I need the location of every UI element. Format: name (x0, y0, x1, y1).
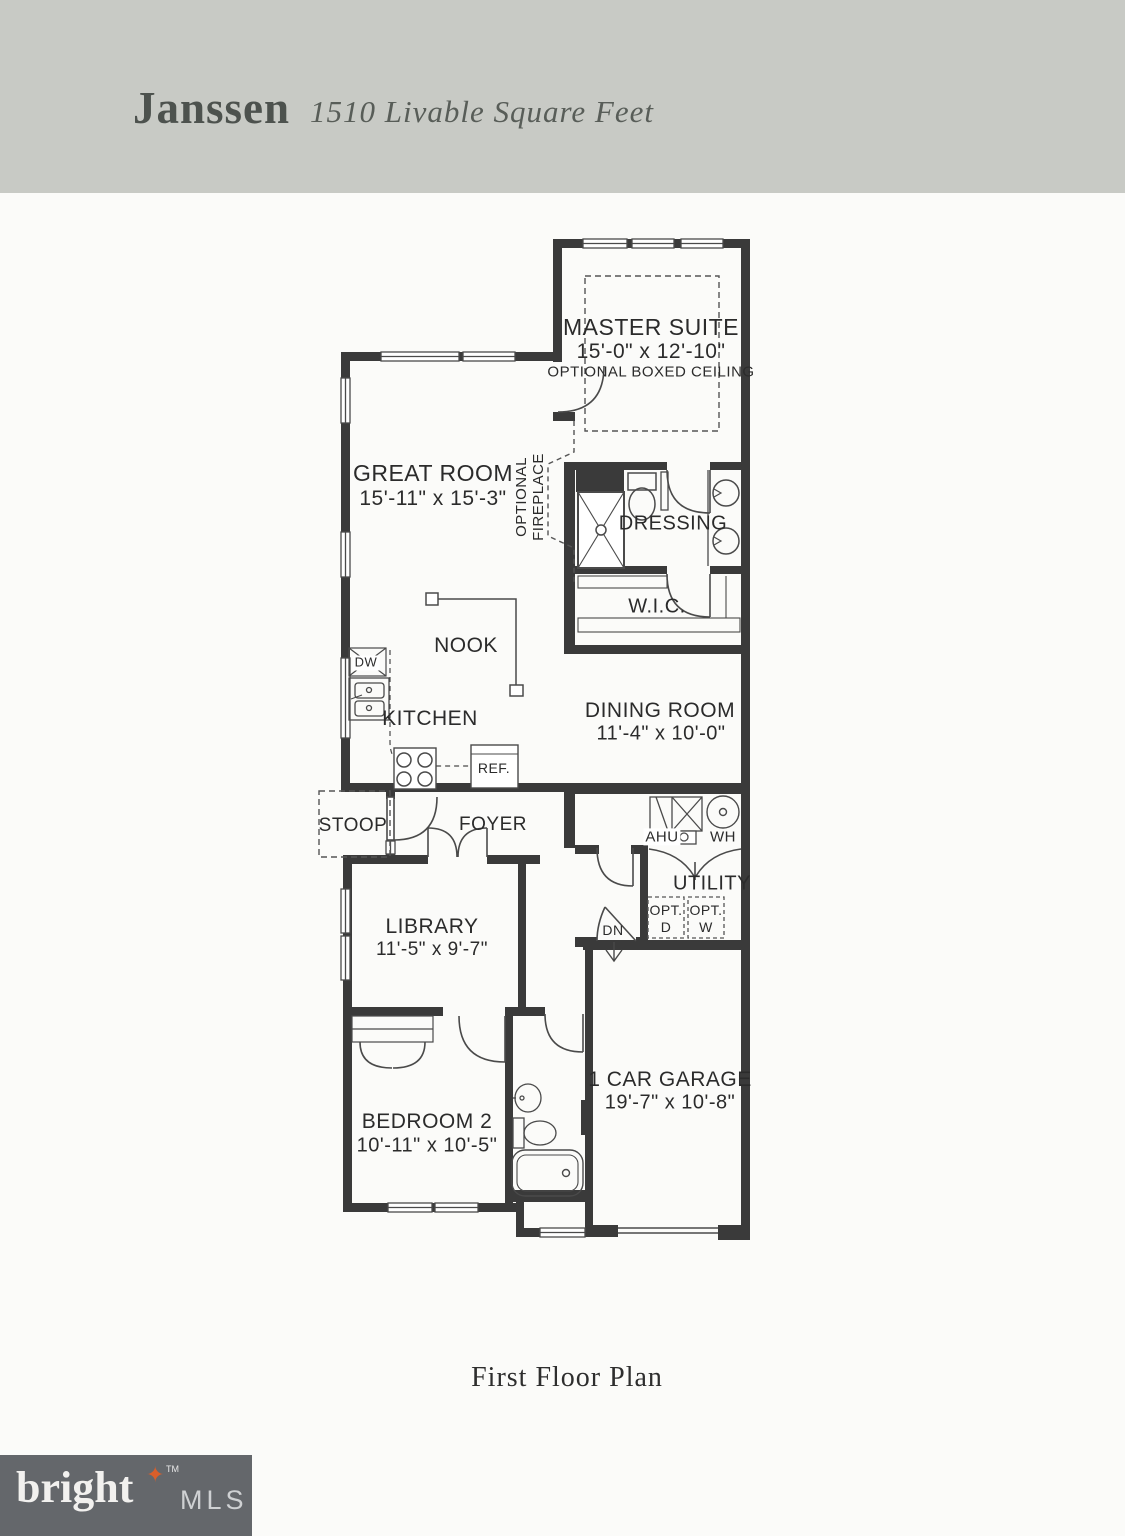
master-to-dressing-door (667, 470, 710, 513)
logo-brand-text: bright (16, 1466, 133, 1510)
stove (394, 748, 436, 789)
bathroom-door (545, 1014, 583, 1052)
dining-room-label: DINING ROOM (585, 699, 735, 723)
floor-plan-drawing (0, 0, 1125, 1536)
stoop-label: STOOP (319, 815, 388, 837)
bathroom-toilet (513, 1118, 556, 1148)
front-entry-door (387, 797, 437, 840)
nook-label: NOOK (434, 634, 498, 658)
opt-dryer-label-line2: D (661, 919, 672, 935)
bedroom2-closet-doors (352, 1016, 433, 1068)
bathtub (512, 1150, 583, 1196)
bathroom-sink (513, 1084, 541, 1112)
water-heater (707, 796, 739, 828)
dishwasher-label: DW (353, 656, 380, 671)
opt-washer-label-line1: OPT. (689, 902, 722, 918)
bedroom2-dims: 10'-11" x 10'-5" (357, 1135, 498, 1158)
foyer-label: FOYER (459, 814, 527, 836)
logo-mls-text: MLS (180, 1485, 248, 1516)
master-suite-label: MASTER SUITE (563, 314, 739, 340)
great-room-label: GREAT ROOM (353, 460, 513, 486)
garage-label: 1 CAR GARAGE (588, 1068, 752, 1092)
stairs-down-label: DN (602, 922, 623, 938)
master-suite-windows (583, 239, 723, 248)
opt-dryer-label-line1: OPT. (649, 902, 682, 918)
bedroom2-label: BEDROOM 2 (362, 1110, 493, 1134)
library-label: LIBRARY (386, 915, 479, 939)
dining-room-dims: 11'-4" x 10'-0" (596, 723, 725, 746)
opt-washer-label-line2: W (699, 919, 713, 935)
ahu-label: AHU (643, 828, 680, 845)
logo-trademark: TM (166, 1464, 179, 1474)
kitchen-label: KITCHEN (382, 707, 478, 731)
bedroom2-door (459, 1016, 505, 1062)
water-heater-label: WH (710, 828, 736, 845)
garage-door (618, 1228, 718, 1233)
refrigerator-label: REF. (478, 760, 510, 776)
master-suite-dims: 15'-0" x 12'-10" (577, 340, 726, 364)
floor-plan-caption: First Floor Plan (471, 1362, 663, 1394)
garage-dims: 19'-7" x 10'-8" (605, 1092, 736, 1115)
wic-label: W.I.C. (628, 596, 685, 619)
utility-label: UTILITY (673, 873, 751, 896)
shower (578, 492, 624, 568)
master-suite-note: OPTIONAL BOXED CEILING (547, 363, 754, 380)
library-dims: 11'-5" x 9'-7" (376, 939, 488, 961)
optional-fireplace-label: OPTIONAL FIREPLACE (513, 453, 548, 541)
great-room-dims: 15'-11" x 15'-3" (359, 487, 506, 511)
foyer-to-hall-door (597, 848, 633, 886)
logo-star-icon: ✦ (146, 1464, 164, 1486)
scanned-floor-plan-page: { "header": { "title": "Janssen", "subti… (0, 0, 1125, 1536)
dressing-label: DRESSING (619, 513, 727, 536)
